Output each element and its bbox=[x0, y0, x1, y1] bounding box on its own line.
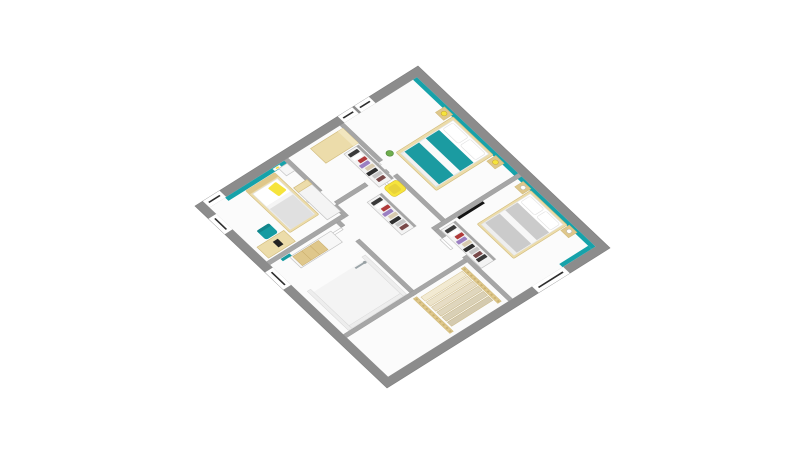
floor-plan-render bbox=[0, 0, 800, 450]
floor-plan-canvas bbox=[0, 0, 800, 450]
